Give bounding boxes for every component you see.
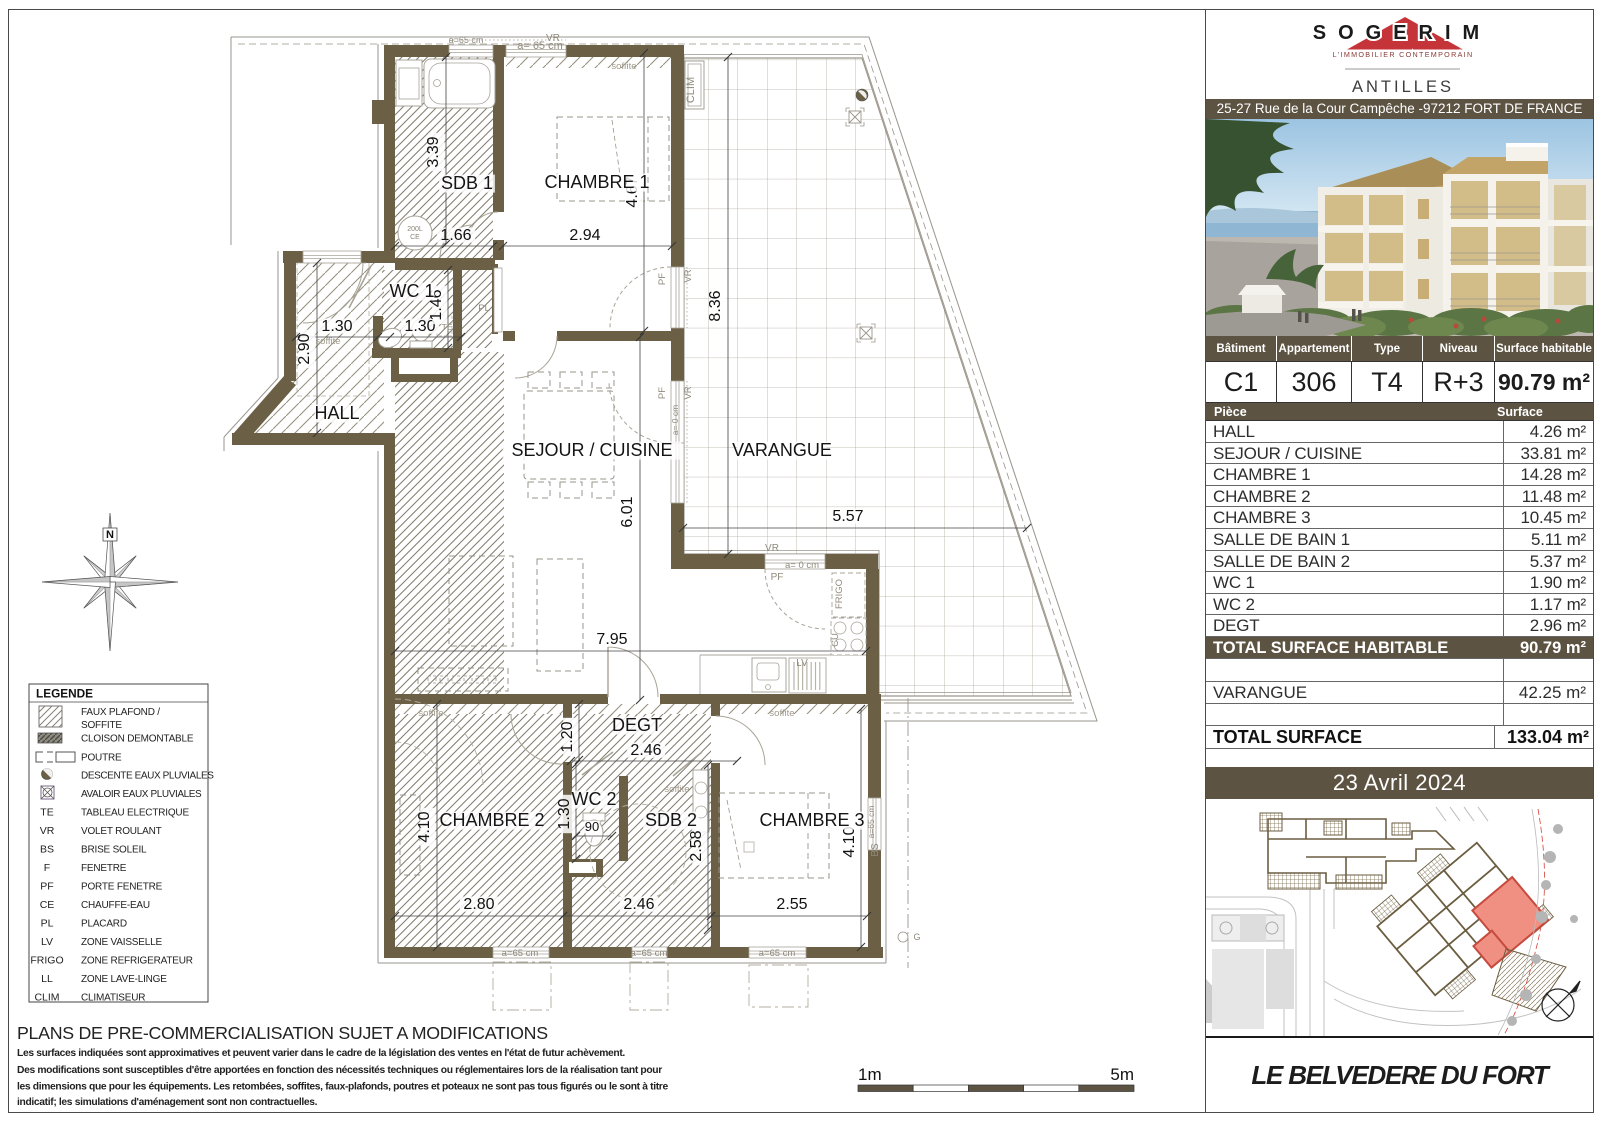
- svg-text:2.94: 2.94: [569, 227, 600, 244]
- svg-text:2.46: 2.46: [630, 742, 661, 759]
- svg-text:a= 0 cm: a= 0 cm: [670, 405, 680, 435]
- svg-text:2.46: 2.46: [623, 896, 654, 913]
- svg-text:les dimensions que pour les éq: les dimensions que pour les équipements.…: [17, 1082, 668, 1093]
- svg-text:PL: PL: [41, 918, 54, 930]
- svg-text:TE: TE: [40, 807, 53, 819]
- svg-text:CHAUFFE-EAU: CHAUFFE-EAU: [81, 900, 150, 911]
- svg-text:3.39: 3.39: [425, 136, 442, 167]
- svg-text:CE: CE: [410, 234, 420, 241]
- svg-text:8.36: 8.36: [707, 290, 724, 321]
- svg-text:DEGT: DEGT: [612, 715, 662, 735]
- svg-text:BS: BS: [40, 844, 54, 856]
- svg-text:AVALOIR EAUX PLUVIALES: AVALOIR EAUX PLUVIALES: [81, 789, 202, 800]
- svg-text:PF: PF: [40, 881, 53, 893]
- svg-text:1.66: 1.66: [440, 227, 471, 244]
- svg-text:CHAMBRE 3: CHAMBRE 3: [759, 810, 864, 830]
- svg-text:HALL: HALL: [314, 403, 359, 423]
- svg-text:WC 2: WC 2: [572, 789, 617, 809]
- svg-text:LV: LV: [796, 658, 808, 669]
- svg-text:5.57: 5.57: [832, 508, 863, 525]
- svg-text:PL: PL: [478, 303, 490, 314]
- svg-text:4.10: 4.10: [841, 826, 858, 857]
- svg-text:2.58: 2.58: [688, 830, 705, 861]
- svg-text:a=65 cm: a=65 cm: [449, 35, 484, 45]
- svg-text:ANTILLES: ANTILLES: [1352, 78, 1454, 96]
- svg-text:PF: PF: [657, 273, 668, 285]
- svg-text:BS: BS: [870, 843, 881, 857]
- svg-text:FAUX PLAFOND /: FAUX PLAFOND /: [81, 707, 160, 718]
- svg-text:N: N: [106, 529, 114, 541]
- svg-text:CLIM: CLIM: [34, 992, 59, 1004]
- svg-text:L'IMMOBILIER CONTEMPORAIN: L'IMMOBILIER CONTEMPORAIN: [1333, 50, 1474, 59]
- svg-text:VR: VR: [40, 825, 55, 837]
- svg-text:a= 65 cm: a= 65 cm: [517, 40, 563, 52]
- svg-text:200L: 200L: [407, 226, 423, 233]
- svg-text:CHAMBRE 1: CHAMBRE 1: [544, 172, 649, 192]
- svg-text:a=65 cm: a=65 cm: [631, 948, 668, 959]
- svg-text:BRISE SOLEIL: BRISE SOLEIL: [81, 845, 147, 856]
- svg-text:a=65 cm: a=65 cm: [866, 806, 876, 839]
- svg-text:TE: TE: [442, 322, 453, 332]
- svg-text:G: G: [913, 932, 920, 942]
- svg-text:WC 1: WC 1: [390, 281, 435, 301]
- svg-text:CLIMATISEUR: CLIMATISEUR: [81, 993, 145, 1004]
- svg-text:2.80: 2.80: [463, 896, 494, 913]
- svg-text:PORTE FENETRE: PORTE FENETRE: [81, 882, 163, 893]
- svg-text:CE: CE: [40, 899, 55, 911]
- svg-text:2.90: 2.90: [296, 333, 313, 364]
- svg-text:soffite: soffite: [315, 336, 340, 347]
- svg-text:1.20: 1.20: [559, 721, 576, 752]
- svg-text:2.55: 2.55: [776, 896, 807, 913]
- svg-text:VOLET ROULANT: VOLET ROULANT: [81, 826, 162, 837]
- svg-text:FRIGO: FRIGO: [834, 579, 845, 609]
- svg-text:VR: VR: [683, 386, 694, 399]
- svg-text:indicatif; les simulations d'a: indicatif; les simulations d'aménagement…: [17, 1097, 318, 1108]
- svg-text:VR: VR: [765, 543, 779, 554]
- svg-text:SOGERIM: SOGERIM: [1313, 22, 1491, 44]
- svg-text:Des modifications sont suscept: Des modifications sont susceptibles d'êt…: [17, 1065, 662, 1076]
- svg-text:soffite: soffite: [664, 784, 689, 795]
- svg-text:CLIM: CLIM: [685, 77, 697, 103]
- svg-text:soffite: soffite: [769, 708, 794, 719]
- svg-text:PLANS DE PRE-COMMERCIALISATION: PLANS DE PRE-COMMERCIALISATION SUJET A M…: [17, 1023, 548, 1043]
- svg-text:LEGENDE: LEGENDE: [36, 687, 93, 701]
- svg-text:1.30: 1.30: [556, 798, 573, 829]
- svg-text:LV: LV: [41, 936, 53, 948]
- svg-text:PLACARD: PLACARD: [81, 919, 127, 930]
- svg-text:SEJOUR / CUISINE: SEJOUR / CUISINE: [511, 440, 672, 460]
- svg-text:CHAMBRE 2: CHAMBRE 2: [439, 810, 544, 830]
- svg-text:CU: CU: [830, 633, 841, 647]
- svg-text:6.01: 6.01: [619, 496, 636, 527]
- svg-text:soffite: soffite: [418, 708, 443, 719]
- svg-text:Les surfaces indiquées sont ap: Les surfaces indiquées sont approximativ…: [17, 1048, 625, 1059]
- svg-text:LL: LL: [41, 973, 53, 985]
- svg-text:VARANGUE: VARANGUE: [732, 440, 832, 460]
- svg-text:DESCENTE EAUX PLUVIALES: DESCENTE EAUX PLUVIALES: [81, 771, 214, 782]
- svg-text:7.95: 7.95: [596, 631, 627, 648]
- svg-text:FENETRE: FENETRE: [81, 863, 127, 874]
- svg-text:90: 90: [585, 819, 599, 834]
- svg-text:4.10: 4.10: [416, 811, 433, 842]
- svg-text:5m: 5m: [1110, 1065, 1134, 1084]
- svg-text:PF: PF: [771, 572, 784, 583]
- svg-text:SOFFITE: SOFFITE: [81, 720, 122, 731]
- svg-text:ZONE REFRIGERATEUR: ZONE REFRIGERATEUR: [81, 956, 193, 967]
- svg-text:CLOISON DEMONTABLE: CLOISON DEMONTABLE: [81, 734, 194, 745]
- svg-text:POUTRE: POUTRE: [81, 753, 122, 764]
- svg-text:soffite: soffite: [611, 61, 636, 72]
- svg-text:ZONE LAVE-LINGE: ZONE LAVE-LINGE: [81, 974, 167, 985]
- svg-text:PF: PF: [657, 387, 668, 399]
- svg-text:1.30: 1.30: [321, 318, 352, 335]
- svg-text:TABLEAU ELECTRIQUE: TABLEAU ELECTRIQUE: [81, 808, 189, 819]
- svg-text:SDB 2: SDB 2: [645, 810, 697, 830]
- svg-text:a= 0 cm: a= 0 cm: [785, 560, 819, 571]
- svg-text:a=65 cm: a=65 cm: [759, 948, 796, 959]
- svg-text:SDB 1: SDB 1: [441, 173, 493, 193]
- svg-text:VR: VR: [683, 269, 694, 282]
- svg-text:1m: 1m: [858, 1065, 882, 1084]
- svg-text:F: F: [44, 862, 50, 874]
- svg-text:ZONE VAISSELLE: ZONE VAISSELLE: [81, 937, 162, 948]
- svg-text:a=65 cm: a=65 cm: [502, 948, 539, 959]
- svg-text:FRIGO: FRIGO: [30, 955, 63, 967]
